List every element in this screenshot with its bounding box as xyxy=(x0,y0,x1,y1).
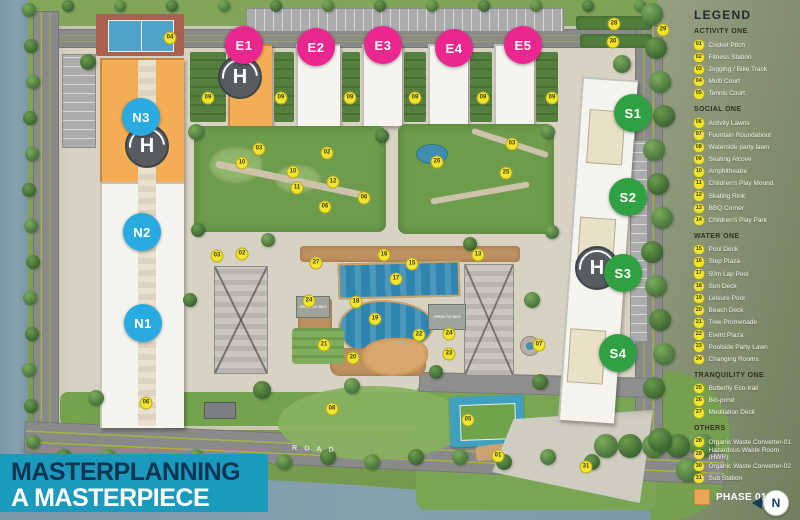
tree xyxy=(22,3,36,17)
phase-swatch xyxy=(694,489,710,505)
legend-item-label: Changing Rooms xyxy=(709,356,759,363)
tree xyxy=(540,449,556,465)
legend-item: 30Organic Waste Converter-02 xyxy=(690,460,798,472)
water-left xyxy=(0,0,28,520)
tree xyxy=(613,55,631,73)
legend-item-label: Organic Waste Converter-01 xyxy=(709,439,792,446)
legend-item-number: 24 xyxy=(694,355,704,365)
map-marker-16: 16 xyxy=(379,250,390,261)
tree xyxy=(276,454,292,470)
tree xyxy=(649,71,671,93)
legend-item-number: 06 xyxy=(694,118,704,128)
hedge-court-3 xyxy=(404,52,426,122)
legend-item-number: 09 xyxy=(694,155,704,165)
entrance-gatehouse xyxy=(204,402,236,419)
tree xyxy=(25,327,39,341)
tree xyxy=(26,75,40,89)
tree xyxy=(643,377,665,399)
tree xyxy=(23,111,37,125)
legend-item: 15Pool Deck xyxy=(690,244,798,256)
legend-item: 09Seating Alcove xyxy=(690,154,798,166)
tree xyxy=(452,449,468,465)
legend-item: 16Step Plaza xyxy=(690,256,798,268)
tree xyxy=(374,0,386,12)
legend-item: 11Children's Play Mound xyxy=(690,178,798,190)
legend-item: 01Cricket Pitch xyxy=(690,39,798,51)
legend-item-label: Fitness Station xyxy=(709,54,752,61)
legend-item-label: Seating Alcove xyxy=(709,156,752,163)
legend-item-number: 01 xyxy=(694,40,704,50)
tree xyxy=(541,125,555,139)
tree xyxy=(647,173,669,195)
block-label-e3: E3 xyxy=(364,26,402,64)
legend-item-label: Jogging / Bike Track xyxy=(709,66,768,73)
tree xyxy=(24,39,38,53)
map-marker-03: 03 xyxy=(254,144,265,155)
tree xyxy=(364,454,380,470)
tree xyxy=(26,255,40,269)
map-marker-24: 24 xyxy=(304,296,315,307)
block-label-s2: S2 xyxy=(609,178,647,216)
legend-item: 08Waterside party lawn xyxy=(690,141,798,153)
map-marker-06: 06 xyxy=(320,202,331,213)
map-marker-13: 13 xyxy=(473,250,484,261)
legend-item-label: Tree Promenade xyxy=(709,319,758,326)
legend-item: 13BBQ Corner xyxy=(690,202,798,214)
map-marker-21: 21 xyxy=(319,340,330,351)
legend-item-number: 30 xyxy=(694,462,704,472)
legend-item-number: 20 xyxy=(694,306,704,316)
map-marker-03: 03 xyxy=(507,139,518,150)
legend-item-number: 04 xyxy=(694,77,704,87)
legend-item-label: Sub Station xyxy=(709,475,743,482)
legend-item: 14Children's Play Park xyxy=(690,214,798,226)
legend-panel: LEGEND ACTIVITY ONE01Cricket Pitch02Fitn… xyxy=(690,8,798,485)
legend-item-label: Tennis Court xyxy=(709,90,746,97)
legend-item-number: 05 xyxy=(694,89,704,99)
tree xyxy=(618,434,642,458)
legend-item-label: Waterside party lawn xyxy=(709,144,769,151)
tree xyxy=(463,237,477,251)
legend-item: 12Skating Rink xyxy=(690,190,798,202)
legend-item-label: Fountain Roundabout xyxy=(709,132,772,139)
block-label-e4: E4 xyxy=(435,29,473,67)
tree xyxy=(253,381,271,399)
map-marker-18: 18 xyxy=(351,297,362,308)
map-marker-24: 24 xyxy=(444,329,455,340)
banner-line1: MASTERPLANNING xyxy=(11,459,268,485)
tree xyxy=(594,434,618,458)
map-marker-02: 02 xyxy=(322,148,333,159)
legend-item: 25Butterfly Eco-trail xyxy=(690,383,798,395)
legend-item-number: 21 xyxy=(694,318,704,328)
legend-item-label: Children's Play Park xyxy=(709,217,767,224)
map-marker-17: 17 xyxy=(391,274,402,285)
tree xyxy=(530,0,542,12)
legend-item-label: Sun Deck xyxy=(709,283,737,290)
tree xyxy=(218,0,230,12)
map-marker-19: 19 xyxy=(370,314,381,325)
legend-item-number: 14 xyxy=(694,216,704,226)
legend-item: 23Poolside Party Lawn xyxy=(690,341,798,353)
tree xyxy=(426,0,438,12)
banner-line2: A MASTERPIECE xyxy=(11,485,268,511)
hedge-court-5 xyxy=(536,52,558,122)
map-marker-25: 25 xyxy=(501,168,512,179)
tree xyxy=(649,309,671,331)
legend-item-number: 16 xyxy=(694,257,704,267)
tree xyxy=(645,37,667,59)
tree xyxy=(641,3,663,25)
hedge-court-2 xyxy=(342,52,360,122)
open-to-sky-left-label: OPEN TO SKY xyxy=(299,305,326,310)
map-marker-06: 06 xyxy=(359,193,370,204)
tree xyxy=(166,0,178,12)
tree xyxy=(322,0,334,12)
map-marker-06: 06 xyxy=(141,398,152,409)
map-marker-10: 10 xyxy=(288,167,299,178)
tree xyxy=(478,0,490,12)
block-label-s3: S3 xyxy=(604,254,642,292)
tree xyxy=(653,343,675,365)
tree xyxy=(88,390,104,406)
legend-item: 02Fitness Station xyxy=(690,51,798,63)
legend-item-number: 25 xyxy=(694,384,704,394)
legend-section-title: WATER ONE xyxy=(694,233,798,241)
map-marker-09: 09 xyxy=(345,93,356,104)
legend-item: 29Hazardous Waste Room (HWR) xyxy=(690,448,798,460)
legend-title: LEGEND xyxy=(694,8,798,22)
legend-item-number: 17 xyxy=(694,269,704,279)
legend-item-label: Meditation Deck xyxy=(709,409,756,416)
block-label-e2: E2 xyxy=(297,28,335,66)
legend-item-number: 15 xyxy=(694,245,704,255)
legend-item-label: Hazardous Waste Room (HWR) xyxy=(709,447,799,461)
legend-item-label: Poolside Party Lawn xyxy=(709,344,768,351)
map-marker-09: 09 xyxy=(547,93,558,104)
tree xyxy=(114,0,126,12)
legend-item-number: 22 xyxy=(694,330,704,340)
hedge-court-4 xyxy=(470,52,492,122)
block-label-n2: N2 xyxy=(123,213,161,251)
block-label-s1: S1 xyxy=(614,94,652,132)
future-block-right xyxy=(464,264,514,376)
legend-section-title: SOCIAL ONE xyxy=(694,106,798,114)
legend-item-label: Cricket Pitch xyxy=(709,42,745,49)
helipad-letter: H xyxy=(233,66,247,89)
map-marker-31: 31 xyxy=(581,462,592,473)
map-marker-11: 11 xyxy=(292,183,303,194)
legend-item-number: 31 xyxy=(694,474,704,484)
legend-item-label: Children's Play Mound xyxy=(709,180,774,187)
map-marker-22: 22 xyxy=(414,330,425,341)
legend-item: 10Amphitheatre xyxy=(690,166,798,178)
legend-item-number: 02 xyxy=(694,53,704,63)
legend-item-label: Leisure Pool xyxy=(709,295,745,302)
legend-item-number: 29 xyxy=(694,450,704,460)
masterplan-poster: OPEN TO SKY OPEN TO SKY ROAD HHH 0428302… xyxy=(0,0,800,520)
tree xyxy=(62,0,74,12)
map-marker-10: 10 xyxy=(237,158,248,169)
legend-item-number: 23 xyxy=(694,342,704,352)
open-to-sky-right: OPEN TO SKY xyxy=(428,304,466,330)
compass-arrow-icon xyxy=(752,497,762,509)
map-marker-28: 28 xyxy=(609,19,620,30)
tree xyxy=(545,225,559,239)
legend-item-label: Activity Lawns xyxy=(709,120,750,127)
tree xyxy=(375,129,389,143)
map-marker-05: 05 xyxy=(463,415,474,426)
legend-item-number: 26 xyxy=(694,396,704,406)
tree xyxy=(22,183,36,197)
compass-north-label: N xyxy=(772,496,781,510)
legend-item-number: 19 xyxy=(694,294,704,304)
legend-item: 26Bio-pond xyxy=(690,395,798,407)
tree xyxy=(22,363,36,377)
legend-section-title: ACTIVITY ONE xyxy=(694,28,798,36)
tree xyxy=(188,124,204,140)
legend-item-label: Skating Rink xyxy=(709,193,746,200)
legend-item-number: 10 xyxy=(694,167,704,177)
map-marker-02: 02 xyxy=(237,249,248,260)
legend-item: 27Meditation Deck xyxy=(690,407,798,419)
tree xyxy=(25,147,39,161)
map-marker-07: 07 xyxy=(534,340,545,351)
legend-item: 20Beach Deck xyxy=(690,305,798,317)
tree xyxy=(24,399,38,413)
legend-item-number: 28 xyxy=(694,437,704,447)
tree xyxy=(191,223,205,237)
tree xyxy=(270,0,282,12)
legend-item: 06Activity Lawns xyxy=(690,117,798,129)
map-marker-26: 26 xyxy=(432,157,443,168)
legend-item: 07Fountain Roundabout xyxy=(690,129,798,141)
legend-item: 21Tree Promenade xyxy=(690,317,798,329)
legend-item-label: Butterfly Eco-trail xyxy=(709,385,759,392)
legend-item: 03Jogging / Bike Track xyxy=(690,63,798,75)
tree xyxy=(408,449,424,465)
map-marker-09: 09 xyxy=(478,93,489,104)
legend-sections: ACTIVITY ONE01Cricket Pitch02Fitness Sta… xyxy=(690,28,798,485)
block-label-s4: S4 xyxy=(599,334,637,372)
tree xyxy=(24,219,38,233)
tree xyxy=(645,275,667,297)
map-marker-12: 12 xyxy=(328,177,339,188)
legend-item-label: Event Plaza xyxy=(709,332,744,339)
map-marker-23: 23 xyxy=(444,349,455,360)
block-label-e1: E1 xyxy=(225,26,263,64)
legend-section-title: TRANQUILITY ONE xyxy=(694,372,798,380)
block-label-n3: N3 xyxy=(122,98,160,136)
legend-section-title: OTHERS xyxy=(694,425,798,433)
legend-item-label: Pool Deck xyxy=(709,246,739,253)
tree xyxy=(648,428,672,452)
legend-item-label: BBQ Corner xyxy=(709,205,744,212)
open-to-sky-right-label: OPEN TO SKY xyxy=(433,315,460,320)
map-marker-04: 04 xyxy=(165,33,176,44)
tree xyxy=(429,365,443,379)
map-marker-27: 27 xyxy=(311,258,322,269)
legend-item: 04Multi Court xyxy=(690,76,798,88)
legend-item-label: 50m Lap Pool xyxy=(709,271,749,278)
legend-item-number: 18 xyxy=(694,282,704,292)
legend-item-label: Bio-pond xyxy=(709,397,735,404)
tree xyxy=(26,435,40,449)
legend-item-number: 11 xyxy=(694,179,704,189)
map-marker-09: 09 xyxy=(203,93,214,104)
legend-item-number: 27 xyxy=(694,408,704,418)
legend-item-label: Organic Waste Converter-02 xyxy=(709,463,792,470)
legend-item-number: 08 xyxy=(694,143,704,153)
tree xyxy=(643,139,665,161)
map-marker-29: 29 xyxy=(658,25,669,36)
park-right xyxy=(398,124,554,234)
map-marker-08: 08 xyxy=(327,404,338,415)
tree xyxy=(80,54,96,70)
tree xyxy=(344,378,360,394)
legend-item-label: Beach Deck xyxy=(709,307,744,314)
future-block-left xyxy=(214,266,268,374)
legend-item: 31Sub Station xyxy=(690,473,798,485)
tree xyxy=(532,374,548,390)
legend-item-label: Amphitheatre xyxy=(709,168,748,175)
title-banner: MASTERPLANNING A MASTERPIECE xyxy=(0,454,268,512)
tree xyxy=(524,292,540,308)
tree xyxy=(183,293,197,307)
legend-item: 1750m Lap Pool xyxy=(690,268,798,280)
legend-item-number: 13 xyxy=(694,204,704,214)
legend-item-number: 12 xyxy=(694,191,704,201)
legend-item: 19Leisure Pool xyxy=(690,292,798,304)
map-marker-09: 09 xyxy=(410,93,421,104)
block-label-n1: N1 xyxy=(124,304,162,342)
hedge-court-1 xyxy=(274,52,294,122)
map-marker-30: 30 xyxy=(608,37,619,48)
compass-circle: N xyxy=(763,490,789,516)
tree xyxy=(23,291,37,305)
legend-item-number: 03 xyxy=(694,65,704,75)
map-marker-15: 15 xyxy=(407,259,418,270)
block-label-e5: E5 xyxy=(504,26,542,64)
map-marker-09: 09 xyxy=(276,93,287,104)
tree xyxy=(582,0,594,12)
legend-item: 24Changing Rooms xyxy=(690,353,798,365)
tree xyxy=(653,105,675,127)
map-marker-03: 03 xyxy=(212,251,223,262)
helipad-letter: H xyxy=(140,135,154,158)
legend-item-label: Step Plaza xyxy=(709,258,740,265)
legend-item-number: 07 xyxy=(694,130,704,140)
helipad-letter: H xyxy=(590,257,604,280)
parking-right xyxy=(630,140,648,342)
legend-item: 22Event Plaza xyxy=(690,329,798,341)
tree xyxy=(641,241,663,263)
map-marker-20: 20 xyxy=(348,353,359,364)
tree xyxy=(261,233,275,247)
compass: N xyxy=(752,490,789,516)
legend-item-label: Multi Court xyxy=(709,78,740,85)
legend-item: 05Tennis Court xyxy=(690,88,798,100)
legend-item: 18Sun Deck xyxy=(690,280,798,292)
tree xyxy=(651,207,673,229)
map-marker-01: 01 xyxy=(493,451,504,462)
